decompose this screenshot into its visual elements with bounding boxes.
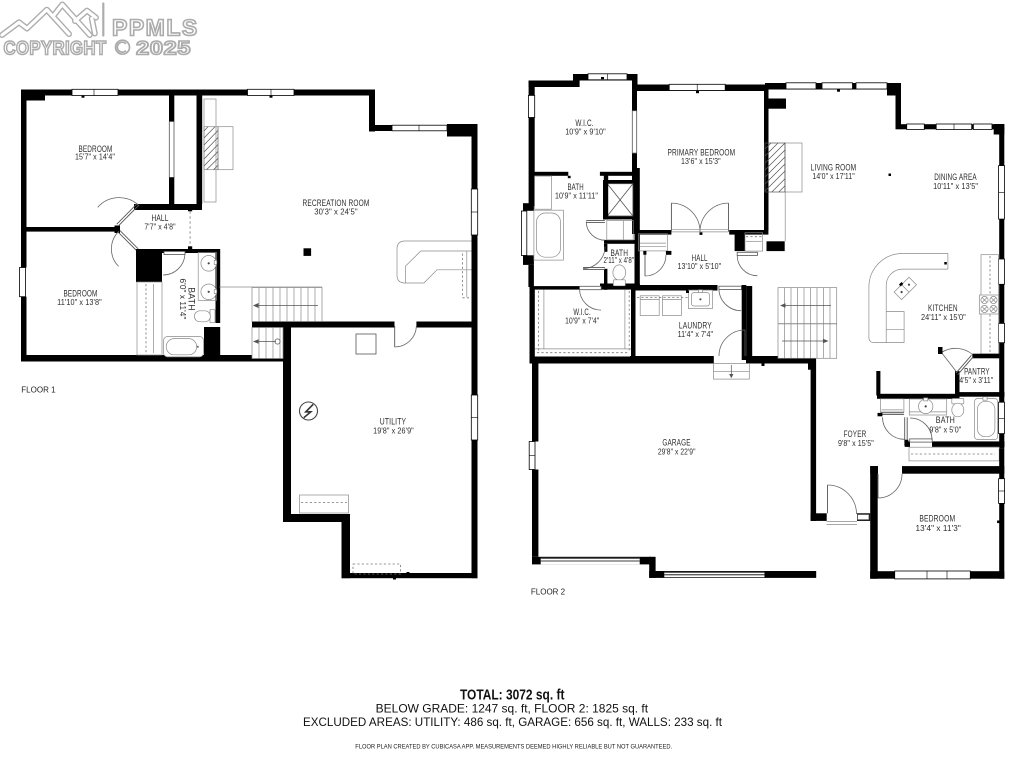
svg-text:10'9" x 7'4": 10'9" x 7'4"	[565, 317, 599, 326]
svg-text:KITCHEN: KITCHEN	[928, 303, 958, 313]
svg-text:29'8" x 22'9": 29'8" x 22'9"	[658, 448, 696, 457]
svg-text:BEDROOM: BEDROOM	[64, 289, 98, 299]
svg-text:9'8" x 5'0": 9'8" x 5'0"	[929, 426, 961, 435]
svg-text:BATH: BATH	[936, 415, 955, 425]
svg-text:W.I.C.: W.I.C.	[573, 307, 590, 317]
svg-text:6'0" x 11'4": 6'0" x 11'4"	[178, 279, 187, 320]
svg-text:2025: 2025	[136, 38, 191, 60]
svg-text:LAUNDRY: LAUNDRY	[679, 321, 712, 331]
svg-text:PRIMARY BEDROOM: PRIMARY BEDROOM	[668, 148, 736, 158]
svg-text:FLOOR PLAN CREATED BY CUBICASA: FLOOR PLAN CREATED BY CUBICASA APP. MEAS…	[355, 743, 672, 750]
svg-text:PPMLS: PPMLS	[112, 14, 199, 40]
svg-text:9'8" x 15'5": 9'8" x 15'5"	[838, 439, 874, 448]
svg-text:RECREATION ROOM: RECREATION ROOM	[303, 198, 370, 208]
svg-text:14'0" x 17'11": 14'0" x 17'11"	[812, 172, 854, 181]
svg-text:BATH: BATH	[567, 182, 583, 192]
svg-text:BEDROOM: BEDROOM	[919, 514, 955, 524]
svg-text:FOYER: FOYER	[844, 429, 867, 439]
svg-text:FLOOR 2: FLOOR 2	[531, 588, 566, 597]
svg-text:13'10" x 5'10": 13'10" x 5'10"	[678, 262, 722, 271]
svg-text:COPYRIGHT: COPYRIGHT	[4, 38, 107, 60]
svg-text:EXCLUDED AREAS: UTILITY: 486 s: EXCLUDED AREAS: UTILITY: 486 sq. ft, GAR…	[303, 715, 723, 729]
svg-text:13'4" x 11'3": 13'4" x 11'3"	[916, 524, 961, 533]
svg-text:DINING AREA: DINING AREA	[934, 172, 976, 182]
svg-text:10'9" x 11'11": 10'9" x 11'11"	[555, 192, 598, 201]
svg-text:30'3" x 24'5": 30'3" x 24'5"	[314, 208, 358, 217]
svg-text:HALL: HALL	[152, 213, 169, 223]
svg-text:GARAGE: GARAGE	[662, 438, 690, 448]
svg-text:19'8" x 26'9": 19'8" x 26'9"	[373, 427, 414, 436]
svg-text:11'10" x 13'8": 11'10" x 13'8"	[57, 298, 102, 307]
svg-text:LIVING ROOM: LIVING ROOM	[811, 163, 857, 173]
svg-text:10'9" x 9'10": 10'9" x 9'10"	[565, 128, 606, 137]
svg-text:2'11" x 4'8": 2'11" x 4'8"	[604, 256, 635, 265]
svg-text:PANTRY: PANTRY	[964, 367, 990, 377]
svg-text:15'7" x 14'4": 15'7" x 14'4"	[75, 153, 115, 162]
svg-text:FLOOR 1: FLOOR 1	[21, 386, 56, 395]
svg-text:7'7" x 4'8": 7'7" x 4'8"	[144, 223, 175, 232]
svg-text:W.I.C.: W.I.C.	[575, 118, 593, 128]
svg-text:4'5" x 3'11": 4'5" x 3'11"	[959, 376, 993, 385]
svg-text:UTILITY: UTILITY	[380, 417, 406, 427]
svg-text:10'11" x 13'5": 10'11" x 13'5"	[933, 182, 978, 191]
svg-text:11'4" x 7'4": 11'4" x 7'4"	[678, 330, 714, 339]
svg-text:24'11" x 15'0": 24'11" x 15'0"	[921, 313, 966, 322]
svg-text:BATH: BATH	[187, 287, 197, 311]
svg-text:13'6" x 15'3": 13'6" x 15'3"	[681, 157, 721, 166]
svg-text:BELOW GRADE: 1247 sq. ft, FLOO: BELOW GRADE: 1247 sq. ft, FLOOR 2: 1825 …	[376, 702, 649, 716]
